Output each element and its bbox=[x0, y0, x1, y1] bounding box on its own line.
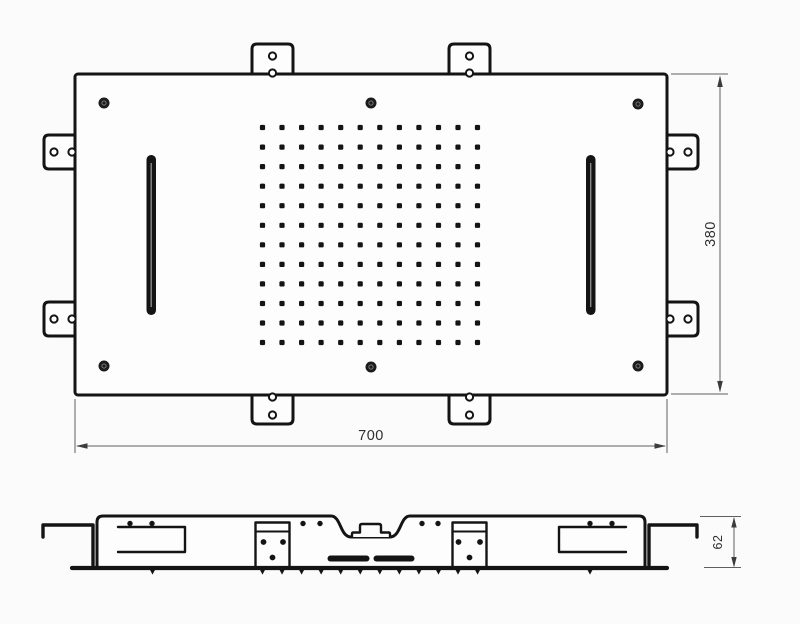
spray-hole bbox=[260, 340, 265, 345]
spray-hole bbox=[260, 223, 265, 228]
spray-hole bbox=[436, 145, 441, 150]
spray-hole bbox=[260, 184, 265, 189]
spray-hole bbox=[358, 125, 363, 130]
spray-hole bbox=[475, 320, 480, 325]
spray-hole bbox=[338, 125, 343, 130]
spray-hole bbox=[397, 281, 402, 286]
spray-hole bbox=[416, 301, 421, 306]
spray-hole bbox=[416, 281, 421, 286]
dimension-height: 380 bbox=[671, 74, 728, 394]
spray-hole bbox=[279, 164, 284, 169]
spray-hole bbox=[416, 340, 421, 345]
spray-hole bbox=[358, 301, 363, 306]
arrowhead-up-icon bbox=[731, 517, 736, 528]
tab-hole bbox=[466, 69, 473, 76]
spray-hole bbox=[338, 184, 343, 189]
spray-hole bbox=[377, 184, 382, 189]
spray-hole bbox=[475, 242, 480, 247]
spray-hole bbox=[299, 223, 304, 228]
spray-hole bbox=[455, 164, 460, 169]
spray-nozzle bbox=[298, 569, 304, 575]
corner-screw-icon bbox=[99, 361, 110, 372]
spray-hole bbox=[455, 184, 460, 189]
spray-hole bbox=[260, 164, 265, 169]
spray-hole bbox=[319, 281, 324, 286]
spray-hole bbox=[358, 262, 363, 267]
spray-nozzle bbox=[587, 569, 593, 575]
spray-hole bbox=[455, 301, 460, 306]
tab-hole bbox=[269, 393, 276, 400]
tab-hole bbox=[466, 393, 473, 400]
corner-screw-icon bbox=[633, 361, 644, 372]
spray-hole bbox=[358, 320, 363, 325]
spray-hole bbox=[436, 223, 441, 228]
spray-hole bbox=[358, 184, 363, 189]
spray-hole bbox=[319, 203, 324, 208]
spray-hole bbox=[416, 184, 421, 189]
spray-hole bbox=[436, 184, 441, 189]
spray-hole bbox=[358, 203, 363, 208]
dimension-width-label: 700 bbox=[358, 428, 384, 444]
spray-nozzle bbox=[279, 569, 285, 575]
spray-hole bbox=[455, 125, 460, 130]
spray-hole bbox=[260, 262, 265, 267]
spray-hole bbox=[475, 340, 480, 345]
spray-hole bbox=[397, 301, 402, 306]
arrowhead-down-icon bbox=[731, 557, 736, 568]
spray-hole bbox=[338, 203, 343, 208]
bracket-hole bbox=[666, 315, 673, 322]
spray-hole bbox=[397, 242, 402, 247]
bolt-dot bbox=[149, 521, 154, 526]
spray-hole bbox=[377, 125, 382, 130]
bracket-body bbox=[453, 523, 487, 568]
arrowhead-up-icon bbox=[717, 76, 723, 88]
spray-hole bbox=[455, 223, 460, 228]
spray-hole bbox=[338, 340, 343, 345]
spray-hole bbox=[436, 281, 441, 286]
spray-hole bbox=[436, 301, 441, 306]
bracket-dot bbox=[477, 539, 483, 545]
waterfall-slot-left bbox=[147, 155, 157, 315]
panel-outline bbox=[75, 74, 667, 395]
bracket-hole bbox=[684, 315, 691, 322]
bolt-dot bbox=[609, 521, 614, 526]
dimension-depth: 62 bbox=[700, 517, 741, 568]
spray-nozzle bbox=[259, 569, 265, 575]
bracket-section-left bbox=[256, 523, 290, 568]
spray-hole bbox=[260, 203, 265, 208]
tab-hole bbox=[269, 411, 276, 418]
spray-hole bbox=[299, 281, 304, 286]
spray-hole bbox=[299, 145, 304, 150]
arrowhead-down-icon bbox=[717, 381, 723, 393]
slot-section-right bbox=[374, 556, 415, 562]
bracket-body bbox=[256, 523, 290, 568]
arrowhead-left-icon bbox=[76, 443, 88, 449]
spray-nozzle bbox=[435, 569, 441, 575]
spray-hole bbox=[475, 203, 480, 208]
spray-hole bbox=[279, 281, 284, 286]
spray-hole bbox=[299, 164, 304, 169]
spray-hole bbox=[436, 164, 441, 169]
spray-nozzle bbox=[455, 569, 461, 575]
screw-head bbox=[99, 361, 110, 372]
tab-hole bbox=[269, 69, 276, 76]
spray-hole bbox=[338, 223, 343, 228]
spray-hole bbox=[299, 125, 304, 130]
spray-hole bbox=[397, 320, 402, 325]
spray-hole bbox=[260, 242, 265, 247]
spray-hole bbox=[416, 262, 421, 267]
spray-nozzle bbox=[377, 569, 383, 575]
spray-hole bbox=[260, 320, 265, 325]
spray-hole bbox=[338, 164, 343, 169]
spray-hole bbox=[279, 145, 284, 150]
screw-head bbox=[366, 98, 377, 109]
spray-hole bbox=[416, 320, 421, 325]
spray-hole bbox=[455, 203, 460, 208]
bracket-dot bbox=[467, 555, 473, 561]
bracket-dot bbox=[261, 539, 267, 545]
spray-nozzle bbox=[357, 569, 363, 575]
spray-hole bbox=[319, 184, 324, 189]
spray-hole bbox=[377, 340, 382, 345]
spray-nozzle bbox=[416, 569, 422, 575]
screw-head bbox=[633, 99, 644, 110]
spray-nozzle bbox=[474, 569, 480, 575]
spray-hole bbox=[319, 223, 324, 228]
spray-nozzle bbox=[318, 569, 324, 575]
bracket-hole bbox=[50, 148, 57, 155]
spray-nozzle bbox=[396, 569, 402, 575]
section-hole bbox=[435, 521, 440, 526]
bracket-hole bbox=[50, 315, 57, 322]
section-hole bbox=[317, 521, 322, 526]
spray-hole bbox=[436, 125, 441, 130]
spray-hole bbox=[475, 125, 480, 130]
drawing-svg: 700 380 bbox=[0, 0, 800, 624]
spray-hole bbox=[416, 242, 421, 247]
spray-hole bbox=[260, 125, 265, 130]
spray-hole bbox=[299, 203, 304, 208]
spray-hole bbox=[338, 242, 343, 247]
dimension-depth-label: 62 bbox=[711, 535, 725, 550]
spray-hole bbox=[436, 320, 441, 325]
screw-head bbox=[633, 361, 644, 372]
screw-head bbox=[99, 98, 110, 109]
spray-hole bbox=[475, 262, 480, 267]
spray-hole bbox=[455, 242, 460, 247]
spray-hole bbox=[319, 242, 324, 247]
spray-hole bbox=[338, 281, 343, 286]
spray-hole bbox=[279, 203, 284, 208]
dimension-width: 700 bbox=[75, 399, 667, 453]
spray-hole bbox=[416, 125, 421, 130]
spray-hole bbox=[455, 340, 460, 345]
spray-hole bbox=[436, 203, 441, 208]
spray-hole bbox=[377, 203, 382, 208]
tab-hole bbox=[466, 52, 473, 59]
spray-hole bbox=[279, 242, 284, 247]
tab-hole bbox=[269, 52, 276, 59]
spray-hole bbox=[319, 301, 324, 306]
spray-hole bbox=[319, 145, 324, 150]
spray-hole bbox=[397, 164, 402, 169]
spray-hole bbox=[279, 340, 284, 345]
waterfall-slot-right bbox=[586, 155, 596, 315]
spray-hole bbox=[299, 262, 304, 267]
dimension-height-label: 380 bbox=[703, 221, 719, 247]
spray-hole bbox=[377, 301, 382, 306]
spray-hole bbox=[358, 242, 363, 247]
spray-hole bbox=[455, 320, 460, 325]
spray-hole bbox=[319, 164, 324, 169]
bracket-dot bbox=[456, 539, 462, 545]
bracket-hole bbox=[666, 148, 673, 155]
spray-hole bbox=[338, 262, 343, 267]
spray-hole bbox=[299, 301, 304, 306]
spray-hole bbox=[436, 242, 441, 247]
spray-hole bbox=[260, 301, 265, 306]
bracket-hole bbox=[684, 148, 691, 155]
spray-hole bbox=[279, 184, 284, 189]
spray-hole bbox=[397, 223, 402, 228]
spray-hole bbox=[260, 145, 265, 150]
spray-hole bbox=[279, 320, 284, 325]
spray-hole bbox=[416, 203, 421, 208]
spray-hole bbox=[397, 184, 402, 189]
side-view bbox=[43, 516, 697, 575]
spray-hole bbox=[279, 262, 284, 267]
spray-hole bbox=[455, 262, 460, 267]
spray-hole bbox=[397, 145, 402, 150]
slot-section-left bbox=[328, 556, 370, 562]
bracket-hole bbox=[68, 148, 75, 155]
spray-hole bbox=[377, 223, 382, 228]
spray-hole bbox=[299, 320, 304, 325]
spray-hole bbox=[475, 164, 480, 169]
spray-hole bbox=[377, 320, 382, 325]
spray-hole bbox=[377, 242, 382, 247]
bracket-hole bbox=[68, 315, 75, 322]
spray-hole bbox=[358, 340, 363, 345]
spray-hole bbox=[377, 145, 382, 150]
spray-hole bbox=[397, 125, 402, 130]
spray-hole bbox=[475, 145, 480, 150]
spray-hole bbox=[397, 203, 402, 208]
spray-hole bbox=[475, 223, 480, 228]
spray-hole bbox=[338, 320, 343, 325]
spray-hole bbox=[299, 184, 304, 189]
spray-hole bbox=[455, 281, 460, 286]
frame-hook-left bbox=[43, 525, 93, 565]
spray-hole bbox=[416, 145, 421, 150]
inlet-boss bbox=[352, 524, 390, 537]
section-hole bbox=[300, 521, 305, 526]
spray-hole bbox=[260, 281, 265, 286]
spray-hole bbox=[338, 301, 343, 306]
arrowhead-right-icon bbox=[655, 443, 667, 449]
spray-hole bbox=[338, 145, 343, 150]
bracket-dot bbox=[280, 539, 286, 545]
spray-hole bbox=[416, 223, 421, 228]
spray-hole bbox=[299, 340, 304, 345]
corner-screw-icon bbox=[366, 98, 377, 109]
bracket-dot bbox=[270, 555, 276, 561]
spray-hole bbox=[475, 184, 480, 189]
spray-hole bbox=[455, 145, 460, 150]
spray-hole bbox=[358, 145, 363, 150]
spray-hole bbox=[377, 262, 382, 267]
spray-nozzle bbox=[149, 569, 155, 575]
spray-hole bbox=[279, 125, 284, 130]
spray-hole bbox=[377, 164, 382, 169]
spray-hole bbox=[319, 125, 324, 130]
spray-hole bbox=[319, 262, 324, 267]
corner-screw-icon bbox=[99, 98, 110, 109]
frame-hook-right bbox=[649, 525, 697, 565]
spray-hole bbox=[358, 281, 363, 286]
spray-hole bbox=[299, 242, 304, 247]
corner-screw-icon bbox=[366, 362, 377, 373]
spray-hole bbox=[397, 262, 402, 267]
tab-hole bbox=[466, 411, 473, 418]
corner-screw-icon bbox=[633, 99, 644, 110]
spray-hole bbox=[358, 223, 363, 228]
technical-drawing: 700 380 bbox=[0, 0, 800, 624]
section-hole bbox=[419, 521, 424, 526]
bolt-dot bbox=[587, 521, 592, 526]
spray-hole bbox=[436, 340, 441, 345]
spray-hole bbox=[475, 301, 480, 306]
bracket-section-right bbox=[453, 523, 487, 568]
spray-hole bbox=[319, 340, 324, 345]
spray-hole bbox=[397, 340, 402, 345]
spray-hole bbox=[377, 281, 382, 286]
spray-hole bbox=[436, 262, 441, 267]
screw-head bbox=[366, 362, 377, 373]
spray-hole bbox=[279, 301, 284, 306]
top-view bbox=[44, 44, 698, 424]
spray-hole bbox=[319, 320, 324, 325]
spray-hole bbox=[416, 164, 421, 169]
spray-hole bbox=[358, 164, 363, 169]
spray-nozzle bbox=[338, 569, 344, 575]
spray-hole bbox=[279, 223, 284, 228]
spray-hole bbox=[475, 281, 480, 286]
bolt-dot bbox=[127, 521, 132, 526]
